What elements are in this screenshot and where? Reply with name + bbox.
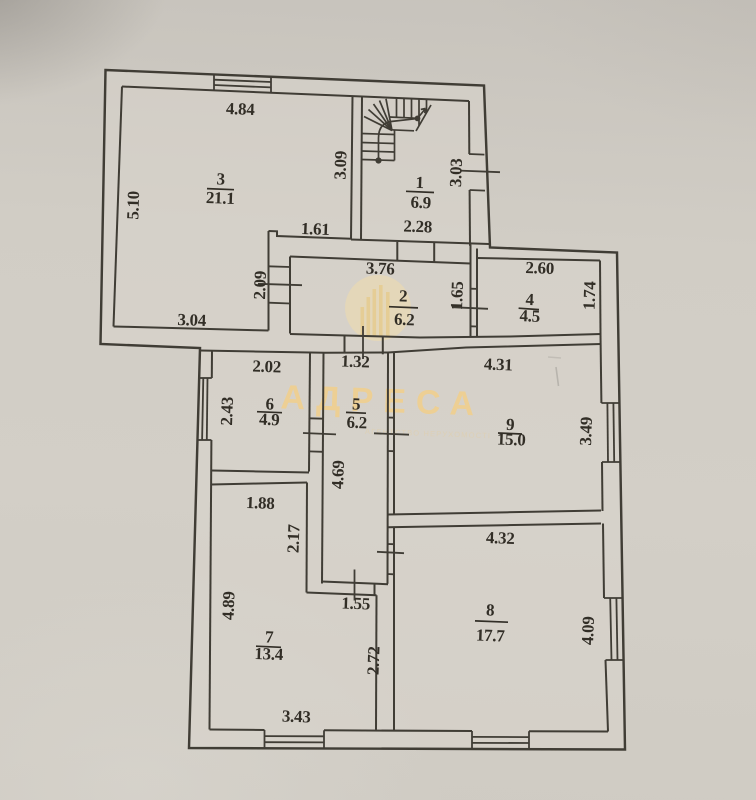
svg-text:17.7: 17.7 xyxy=(476,625,506,645)
svg-text:1.65: 1.65 xyxy=(447,281,467,310)
svg-text:4.09: 4.09 xyxy=(578,616,598,645)
svg-text:1: 1 xyxy=(415,173,424,192)
svg-text:3.43: 3.43 xyxy=(282,706,311,726)
svg-text:6.9: 6.9 xyxy=(410,193,431,213)
svg-text:1.88: 1.88 xyxy=(246,493,275,513)
svg-text:2.09: 2.09 xyxy=(250,271,270,300)
svg-text:4.89: 4.89 xyxy=(219,591,239,620)
svg-text:2.02: 2.02 xyxy=(252,356,281,376)
svg-text:2.60: 2.60 xyxy=(525,258,554,278)
svg-text:3.76: 3.76 xyxy=(366,258,395,278)
svg-text:3: 3 xyxy=(216,169,225,188)
svg-text:6.2: 6.2 xyxy=(346,413,367,433)
svg-text:3.49: 3.49 xyxy=(576,417,596,446)
svg-text:6.2: 6.2 xyxy=(394,310,415,330)
svg-text:15.0: 15.0 xyxy=(497,429,526,449)
svg-text:4.31: 4.31 xyxy=(484,354,513,374)
svg-text:4.84: 4.84 xyxy=(226,99,256,119)
svg-text:2: 2 xyxy=(399,286,408,305)
svg-text:2.43: 2.43 xyxy=(217,397,237,426)
svg-text:4.9: 4.9 xyxy=(259,410,280,430)
svg-text:2.28: 2.28 xyxy=(403,216,432,236)
svg-text:3.03: 3.03 xyxy=(446,158,466,187)
svg-text:4.32: 4.32 xyxy=(486,528,515,548)
svg-text:8: 8 xyxy=(486,600,495,619)
svg-text:13.4: 13.4 xyxy=(254,644,284,664)
svg-text:5: 5 xyxy=(352,394,361,413)
svg-text:1.74: 1.74 xyxy=(580,280,600,310)
svg-text:5.10: 5.10 xyxy=(123,191,143,220)
svg-text:2.72: 2.72 xyxy=(364,646,384,675)
svg-text:1.61: 1.61 xyxy=(301,219,330,239)
svg-text:4.69: 4.69 xyxy=(328,460,348,489)
svg-text:2.17: 2.17 xyxy=(284,523,304,553)
svg-text:4.5: 4.5 xyxy=(519,306,540,326)
svg-text:1.55: 1.55 xyxy=(341,593,370,613)
svg-text:1.32: 1.32 xyxy=(341,351,370,371)
svg-text:21.1: 21.1 xyxy=(206,188,235,208)
svg-text:3.09: 3.09 xyxy=(331,151,351,180)
svg-text:3.04: 3.04 xyxy=(177,310,207,330)
